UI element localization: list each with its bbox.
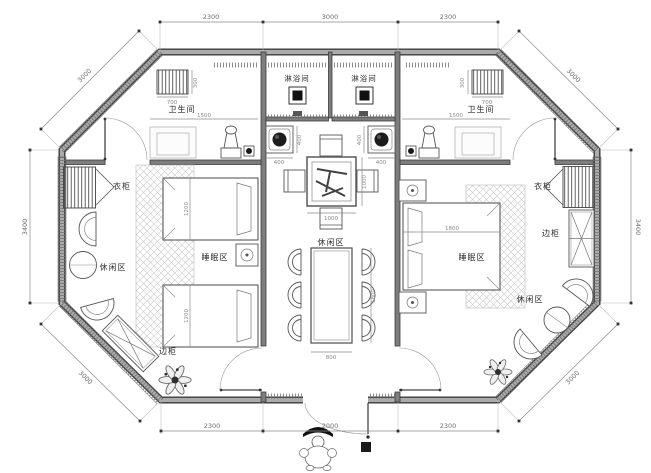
label-sleep-left: 睡眠区 (202, 253, 229, 262)
dim-top-center: 3000 (322, 13, 339, 21)
side-cabinet-right (569, 210, 594, 267)
window-diagonal-top-left (59, 49, 163, 153)
bedroom-door-right (399, 348, 441, 391)
dim-washbasin-left-side: 400 (297, 134, 303, 145)
lounge-chair-left-1 (79, 212, 96, 246)
shower-drain-right (360, 91, 370, 101)
slider-entrance-left (266, 394, 302, 399)
dim-side-right: 3400 (634, 219, 642, 236)
dim-top-left: 2300 (203, 13, 220, 21)
label-shower-left: 淋浴间 (284, 73, 310, 83)
dim-washbasin-left: 400 (274, 160, 285, 166)
washbasin-left: 400 400 (266, 126, 303, 166)
label-leisure-right: 休闲区 (517, 294, 544, 304)
tea-chair-top (320, 135, 342, 156)
dim-bed1-width: 1200 (184, 202, 190, 216)
wardrobe-right (545, 167, 594, 208)
dim-towel-rack-depth-right: 300 (460, 77, 466, 88)
dim-bottom-left: 2300 (204, 422, 221, 430)
shower-handle-left (293, 111, 302, 116)
vent-top-shower-left (268, 63, 326, 68)
dim-bottom-right: 2300 (440, 422, 457, 430)
dim-washbasin-right: 400 (376, 160, 387, 166)
shower-handle-right (359, 111, 368, 116)
dining-chair (288, 315, 301, 341)
label-side-cabinet-right: 边柜 (542, 228, 560, 238)
label-leisure-center: 休闲区 (318, 237, 345, 247)
dim-diagonal-bottom-right: 3000 (564, 369, 581, 386)
bed-double: 1800 (403, 203, 500, 290)
plant-left (159, 364, 191, 395)
dim-bathroom-width-left: 1500 (197, 113, 211, 119)
towel-rack-right (472, 70, 503, 94)
nightstand-right-bottom (399, 292, 426, 313)
door-stop (361, 442, 371, 452)
slider-entrance-right (370, 394, 396, 399)
tea-chair-left (284, 170, 305, 192)
label-bathroom-right: 卫生间 (468, 104, 495, 114)
round-table-left (70, 252, 97, 279)
bath-wall-left-b (150, 160, 261, 165)
shower-room-right (356, 87, 373, 116)
plant-right (484, 358, 512, 385)
dining-chair (362, 315, 375, 341)
wardrobe-left (64, 167, 115, 208)
label-bathroom-left: 卫生间 (169, 104, 196, 114)
dim-dining-width: 800 (326, 355, 337, 361)
tea-table (307, 157, 356, 206)
label-side-cabinet-left: 边柜 (159, 346, 177, 356)
pillow (408, 208, 422, 246)
lounge-chair-left-2 (81, 299, 118, 324)
round-table-right (544, 307, 570, 333)
dim-tea-table: 1000 (324, 216, 338, 222)
bath-wall-left-a (65, 160, 105, 165)
bath-wall-right-b (555, 160, 594, 165)
vent-top-shower-right (334, 63, 392, 68)
bed-single-2: 1200 (163, 285, 258, 347)
dim-diagonal-top-right: 3000 (565, 67, 582, 84)
dim-tea-table-side: 1000 (362, 175, 368, 189)
dim-towel-rack-depth-left: 300 (193, 77, 199, 88)
label-shower-right: 淋浴间 (351, 73, 377, 83)
shower-divider-wall (329, 52, 333, 118)
bathroom-door-left (104, 118, 147, 161)
bath-wall-right-a (400, 160, 510, 165)
nightstand-right-top (399, 180, 426, 201)
dim-double-bed: 1800 (445, 226, 459, 232)
dining-chair (288, 249, 301, 275)
dim-washbasin-right-side: 400 (357, 134, 363, 145)
shower-drain-left (293, 91, 303, 101)
dim-bottom-center: 2000 (322, 422, 339, 430)
towel-rack-left (157, 70, 188, 94)
label-wardrobe-left: 衣柜 (113, 181, 131, 191)
label-wardrobe-right: 衣柜 (534, 181, 552, 191)
toilet-right (419, 126, 439, 158)
floor-plan-canvas: 700 300 1500 700 300 1500 (0, 0, 651, 473)
bathroom-door-right (513, 118, 556, 161)
dim-dining-length: 1800 (371, 289, 377, 303)
corridor-wall-left-stub (261, 392, 266, 402)
pillow (408, 250, 422, 288)
entrance-opening (303, 396, 368, 406)
pillow (237, 183, 251, 235)
dim-bed2-width: 1200 (184, 309, 190, 323)
corridor-wall-left (261, 52, 266, 346)
washbasin-right: 400 400 (357, 126, 395, 166)
floor-drain-right (406, 146, 416, 156)
dim-diagonal-bottom-left: 3000 (77, 369, 94, 386)
dim-side-left: 3400 (21, 219, 29, 236)
dining-set: 800 1800 (288, 248, 377, 361)
toilet-left (221, 126, 241, 158)
bed-single-1: 1200 (163, 178, 258, 240)
shower-room-left (289, 87, 306, 116)
nightstand-left (236, 244, 258, 266)
entrance (300, 403, 372, 471)
dining-table (311, 248, 352, 343)
label-sleep-right: 睡眠区 (459, 253, 486, 262)
floor-plan-page: 700 300 1500 700 300 1500 (0, 0, 651, 473)
dining-chair (362, 249, 375, 275)
entrance-figure (300, 427, 337, 471)
pillow (237, 290, 251, 342)
dim-top-right: 2300 (440, 13, 457, 21)
dim-bathroom-width-right: 1500 (449, 113, 463, 119)
floor-drain-left (244, 146, 254, 156)
window-diagonal-top-right (495, 49, 599, 153)
label-leisure-left: 休闲区 (100, 262, 127, 272)
bedroom-door-left (220, 348, 262, 391)
vent-top-bath-left (214, 63, 259, 68)
vent-top-bath-right (404, 63, 449, 68)
dining-chair (288, 282, 301, 308)
dim-diagonal-top-left: 3000 (76, 67, 93, 84)
